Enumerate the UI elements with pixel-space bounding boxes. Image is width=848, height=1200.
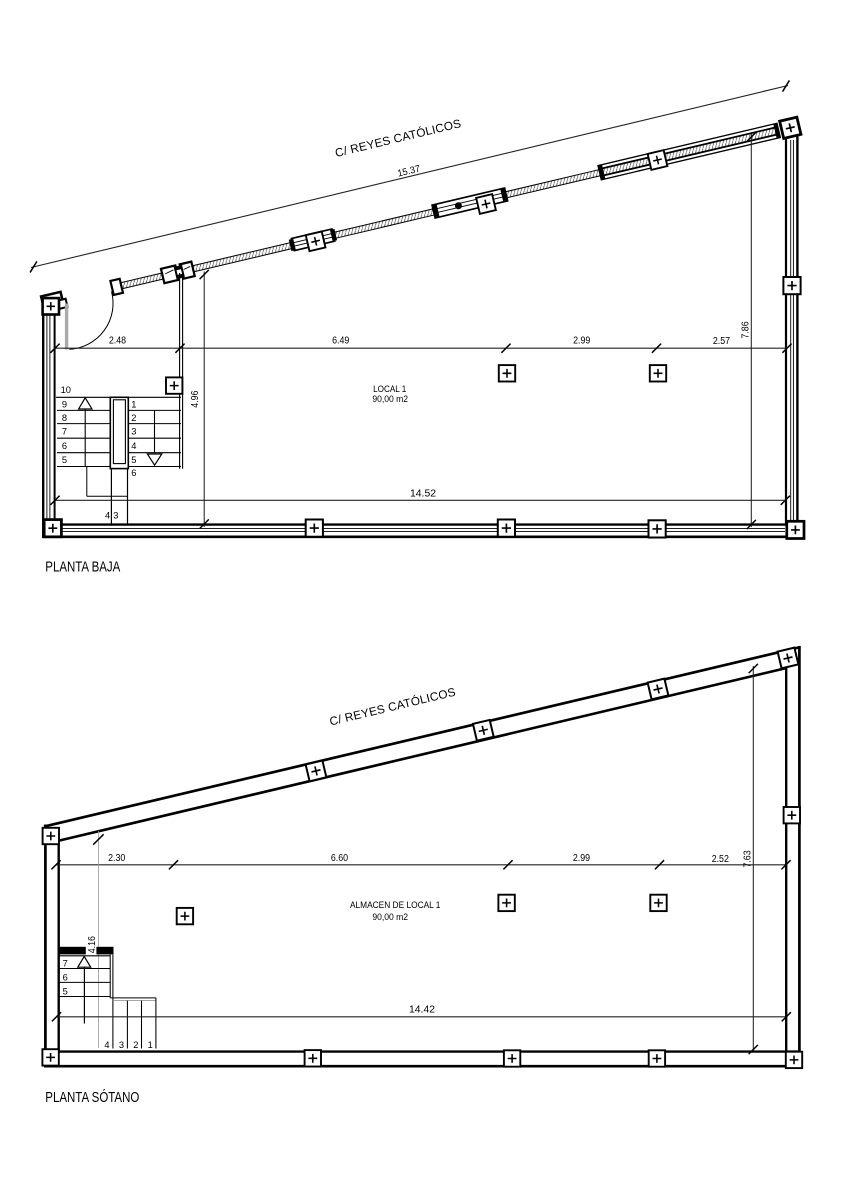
svg-text:PLANTA BAJA: PLANTA BAJA (45, 559, 120, 576)
svg-text:14.52: 14.52 (410, 488, 436, 499)
svg-text:2: 2 (131, 413, 136, 423)
svg-text:4.16: 4.16 (87, 936, 98, 953)
svg-text:14.42: 14.42 (409, 1004, 435, 1015)
svg-text:6: 6 (63, 973, 68, 983)
svg-text:7: 7 (63, 959, 68, 969)
svg-text:4: 4 (131, 441, 136, 451)
svg-text:5: 5 (63, 987, 68, 997)
svg-text:1: 1 (131, 400, 136, 410)
svg-text:2.99: 2.99 (573, 853, 590, 864)
svg-text:3: 3 (113, 511, 118, 521)
svg-text:5: 5 (131, 455, 136, 465)
svg-text:2.52: 2.52 (712, 854, 729, 865)
svg-text:10: 10 (61, 385, 71, 395)
svg-text:4.96: 4.96 (190, 391, 201, 408)
svg-text:7.86: 7.86 (741, 321, 752, 338)
svg-text:PLANTA SÓTANO: PLANTA SÓTANO (45, 1089, 139, 1106)
svg-text:7: 7 (62, 427, 67, 437)
svg-text:7.63: 7.63 (743, 850, 754, 867)
svg-text:5: 5 (62, 455, 67, 465)
svg-text:2.48: 2.48 (109, 336, 126, 347)
svg-text:6.49: 6.49 (332, 336, 349, 347)
svg-text:2.57: 2.57 (713, 336, 730, 347)
svg-text:3: 3 (119, 1040, 124, 1050)
svg-text:6: 6 (62, 441, 67, 451)
svg-text:2: 2 (133, 1040, 138, 1050)
svg-text:90,00 m2: 90,00 m2 (372, 911, 408, 922)
svg-text:6.60: 6.60 (331, 853, 349, 864)
svg-text:90,00 m2: 90,00 m2 (372, 393, 408, 404)
svg-text:1: 1 (148, 1040, 153, 1050)
svg-text:ALMACEN DE LOCAL 1: ALMACEN DE LOCAL 1 (350, 899, 441, 910)
svg-text:8: 8 (62, 413, 67, 423)
svg-text:6: 6 (131, 468, 136, 478)
svg-text:4: 4 (105, 511, 110, 521)
svg-text:4: 4 (104, 1040, 109, 1050)
svg-text:3: 3 (131, 427, 136, 437)
svg-text:2.99: 2.99 (573, 336, 590, 347)
svg-text:9: 9 (62, 400, 67, 410)
svg-text:2.30: 2.30 (108, 853, 126, 864)
